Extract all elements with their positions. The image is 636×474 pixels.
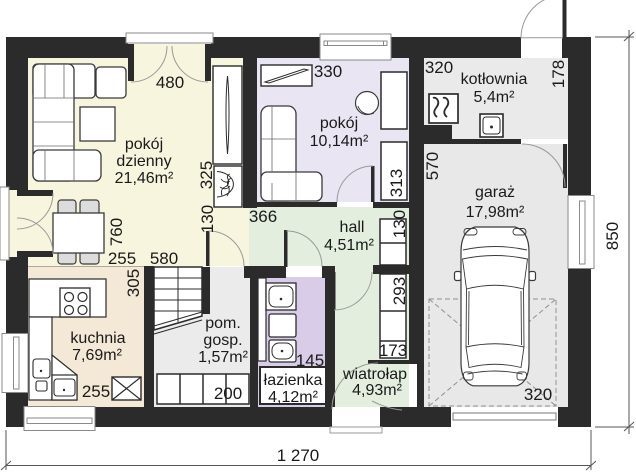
- svg-text:4,93m²: 4,93m²: [352, 382, 402, 399]
- svg-text:760: 760: [107, 218, 126, 246]
- svg-text:178: 178: [549, 60, 568, 88]
- svg-text:255: 255: [82, 382, 110, 401]
- svg-text:200: 200: [214, 384, 242, 403]
- svg-text:320: 320: [425, 58, 453, 77]
- svg-text:hall: hall: [340, 219, 365, 236]
- svg-text:10,14m²: 10,14m²: [310, 133, 369, 150]
- svg-text:1,57m²: 1,57m²: [198, 349, 248, 366]
- svg-text:330: 330: [314, 62, 342, 81]
- svg-text:17,98m²: 17,98m²: [466, 204, 525, 221]
- svg-text:łazienka: łazienka: [264, 372, 323, 389]
- svg-text:wiatrołap: wiatrołap: [342, 366, 407, 383]
- svg-text:173: 173: [379, 341, 407, 360]
- svg-text:pom.: pom.: [205, 315, 241, 332]
- svg-text:garaż: garaż: [475, 184, 515, 201]
- svg-text:580: 580: [150, 249, 178, 268]
- svg-text:130: 130: [390, 210, 409, 238]
- svg-text:pokój: pokój: [320, 115, 358, 132]
- svg-text:850: 850: [603, 222, 622, 250]
- svg-text:255: 255: [108, 249, 136, 268]
- svg-text:130: 130: [198, 205, 217, 233]
- svg-text:305: 305: [124, 269, 143, 297]
- svg-text:293: 293: [390, 277, 409, 305]
- svg-text:gosp.: gosp.: [203, 332, 242, 349]
- svg-text:480: 480: [156, 73, 184, 92]
- svg-text:320: 320: [524, 385, 552, 404]
- svg-text:4,12m²: 4,12m²: [268, 389, 318, 406]
- svg-text:kuchnia: kuchnia: [70, 330, 125, 347]
- svg-text:5,4m²: 5,4m²: [474, 89, 516, 106]
- svg-text:570: 570: [423, 152, 442, 180]
- svg-text:313: 313: [387, 169, 406, 197]
- svg-text:145: 145: [296, 351, 324, 370]
- svg-text:4,51m²: 4,51m²: [324, 237, 374, 254]
- svg-text:7,69m²: 7,69m²: [72, 347, 122, 364]
- svg-text:1 270: 1 270: [277, 446, 320, 465]
- svg-text:pokój: pokój: [125, 136, 163, 153]
- svg-text:325: 325: [197, 161, 216, 189]
- svg-text:366: 366: [249, 207, 277, 226]
- svg-text:dzienny: dzienny: [116, 153, 171, 170]
- svg-text:21,46m²: 21,46m²: [115, 170, 174, 187]
- svg-text:kotłownia: kotłownia: [461, 71, 528, 88]
